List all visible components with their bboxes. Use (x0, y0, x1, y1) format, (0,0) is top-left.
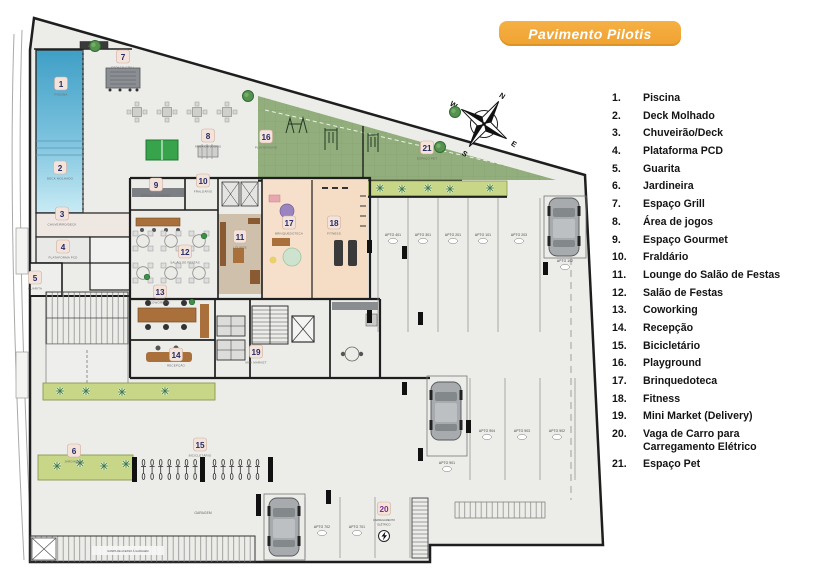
legend-item: 11.Lounge do Salão de Festas (612, 269, 814, 282)
legend-item-label: Fitness (643, 393, 814, 406)
legend-item-number: 12. (612, 287, 634, 300)
plan-badge-caption: JARDINEIRA (64, 460, 83, 464)
plant-icon (53, 462, 61, 470)
plan-badge-number: 11 (236, 233, 245, 242)
playground-green-area (258, 96, 556, 181)
legend-item-label: Lounge do Salão de Festas (643, 269, 814, 282)
ramp-label: RAMPA DE ACESSO À GARAGEM (107, 549, 148, 553)
tree-icon (90, 41, 101, 52)
parking-stall-text: APTO 201 (445, 233, 461, 237)
plan-badge-number: 20 (379, 505, 389, 514)
plan-badge-number: 13 (155, 288, 165, 297)
plan-badge-number: 16 (261, 133, 271, 142)
legend-item: 9.Espaço Gourmet (612, 234, 814, 247)
legend-item-number: 21. (612, 458, 634, 471)
legend-item: 15.Bicicletário (612, 340, 814, 353)
legend-item-number: 13. (612, 304, 634, 317)
legend-item-number: 4. (612, 145, 634, 158)
plan-title-ribbon: Pavimento Pilotis (499, 21, 681, 46)
legend-item: 12.Salão de Festas (612, 287, 814, 300)
legend-item-number: 15. (612, 340, 634, 353)
plan-badge-caption: CHUVEIRÃO/DECK (47, 222, 76, 227)
legend-item-label: Vaga de Carro para Carregamento Elétrico (643, 428, 814, 453)
legend-item: 5.Guarita (612, 163, 814, 176)
legend-item-number: 19. (612, 410, 634, 423)
legend-item: 8.Área de jogos (612, 216, 814, 229)
plant-icon (446, 185, 454, 193)
plant-icon (376, 184, 384, 192)
plan-badge-caption: ESPAÇO GRILL (111, 66, 135, 70)
legend-item-number: 18. (612, 393, 634, 406)
plan-badge-caption: ÁREA DE JOGOS (195, 145, 221, 149)
parking-stall-text: APTO 903 (514, 429, 530, 433)
main-stairs (46, 292, 128, 390)
legend-item: 1.Piscina (612, 92, 814, 105)
legend-item-number: 6. (612, 180, 634, 193)
parking-stall-oval (419, 238, 428, 243)
parking-stall-oval (553, 434, 562, 439)
legend-item: 20.Vaga de Carro para Carregamento Elétr… (612, 428, 814, 453)
parking-stall-oval (483, 434, 492, 439)
plant-icon (486, 184, 494, 192)
plant-icon (398, 185, 406, 193)
legend-item: 18.Fitness (612, 393, 814, 406)
legend-item: 2.Deck Molhado (612, 110, 814, 123)
plan-badge-number: 5 (33, 274, 38, 283)
legend-item-label: Brinquedoteca (643, 375, 814, 388)
parking-stall-oval (318, 530, 327, 535)
parking-stall-oval (449, 238, 458, 243)
garage-label: GARAGEM (194, 511, 212, 515)
garage-ramp: RAMPA DE ACESSO À GARAGEM (30, 536, 255, 562)
legend-item-label: Espaço Pet (643, 458, 814, 471)
legend-item-number: 10. (612, 251, 634, 264)
plant-icon (122, 460, 130, 468)
plant-icon (161, 387, 169, 395)
parking-stall-oval (479, 238, 488, 243)
plan-badge-number: 10 (198, 177, 208, 186)
legend-item-label: Coworking (643, 304, 814, 317)
plan-badge-number: 3 (60, 210, 65, 219)
plan-badge-number: 2 (58, 164, 63, 173)
parking-stall-oval (443, 466, 452, 471)
plan-badge-number: 12 (180, 248, 190, 257)
parking-stall-text: APTO 102 (557, 259, 573, 263)
plan-number-badge: 6JARDINEIRA (64, 444, 83, 464)
legend-item: 17.Brinquedoteca (612, 375, 814, 388)
legend-item-label: Recepção (643, 322, 814, 335)
legend-item-label: Piscina (643, 92, 814, 105)
legend-item: 4.Plataforma PCD (612, 145, 814, 158)
svg-text:CARREGAMENTO: CARREGAMENTO (373, 518, 395, 522)
legend-item-label: Espaço Grill (643, 198, 814, 211)
legend-item-label: Fraldário (643, 251, 814, 264)
parking-stall-oval (389, 238, 398, 243)
legend-item: 6.Jardineira (612, 180, 814, 193)
tree-icon (243, 91, 254, 102)
plan-badge-caption: BRINQUEDOTECA (275, 232, 303, 236)
legend-item-number: 8. (612, 216, 634, 229)
legend-item-number: 1. (612, 92, 634, 105)
plan-badge-caption: PLAYGROUND (255, 146, 278, 150)
legend-item-label: Área de jogos (643, 216, 814, 229)
plan-badge-caption: ESPAÇO PET (417, 157, 437, 161)
plan-number-badge: 20 (378, 502, 391, 515)
legend-item-label: Salão de Festas (643, 287, 814, 300)
plan-badge-caption: COWORKING (150, 301, 171, 305)
plan-badge-number: 18 (329, 219, 339, 228)
plan-number-badge: 11LOUNGE (233, 230, 247, 250)
plan-number-badge: 18FITNESS (327, 216, 341, 236)
legend-item: 13.Coworking (612, 304, 814, 317)
potted-plant-icon (201, 233, 207, 239)
legend-item: 14.Recepção (612, 322, 814, 335)
plan-badge-number: 14 (171, 351, 181, 360)
parking-stall-text: APTO 301 (415, 233, 431, 237)
plan-badge-caption: MINI MARKET (245, 361, 266, 365)
legend-item-label: Jardineira (643, 180, 814, 193)
compass-n: N (498, 91, 507, 102)
legend-item: 21.Espaço Pet (612, 458, 814, 471)
plant-icon (424, 184, 432, 192)
parking-stall-text: APTO 902 (549, 429, 565, 433)
legend-item: 19.Mini Market (Delivery) (612, 410, 814, 423)
plan-number-badge: 14RECEPÇÃO (167, 348, 186, 368)
parking-stall-oval (561, 264, 570, 269)
plan-badge-number: 19 (251, 348, 261, 357)
legend-item-label: Playground (643, 357, 814, 370)
plan-number-badge: 1PISCINA (54, 77, 67, 97)
plan-badge-caption: PISCINA (54, 93, 67, 97)
parking-stall-text: APTO 904 (479, 429, 495, 433)
legend-item: 7.Espaço Grill (612, 198, 814, 211)
legend-item: 10.Fraldário (612, 251, 814, 264)
plan-badge-number: 7 (121, 53, 126, 62)
plant-icon (100, 462, 108, 470)
legend-item-label: Plataforma PCD (643, 145, 814, 158)
legend-item-number: 2. (612, 110, 634, 123)
plant-icon (56, 387, 64, 395)
legend-item-number: 5. (612, 163, 634, 176)
plan-badge-number: 9 (154, 181, 159, 190)
legend: 1.Piscina2.Deck Molhado3.Chuveirão/Deck4… (612, 92, 814, 476)
plan-badge-number: 4 (61, 243, 66, 252)
plan-badge-caption: RECEPÇÃO (167, 363, 186, 368)
parking-stall-text: APTO 101 (475, 233, 491, 237)
plan-badge-caption: BICICLETÁRIO (189, 454, 212, 458)
legend-item-label: Mini Market (Delivery) (643, 410, 814, 423)
pool (36, 50, 83, 213)
plan-badge-number: 6 (72, 447, 77, 456)
legend-item-number: 16. (612, 357, 634, 370)
plan-number-badge: 5GUARITA (28, 271, 42, 291)
parking-stall-oval (515, 238, 524, 243)
plan-badge-caption: LOUNGE (233, 246, 247, 250)
plan-badge-caption: GUARITA (28, 287, 42, 291)
plan-badge-number: 21 (422, 144, 432, 153)
potted-plant-icon (144, 274, 150, 280)
parking-stall-oval (518, 434, 527, 439)
plan-badge-caption: PLATAFORMA PCD (49, 256, 79, 260)
plant-icon (118, 388, 126, 396)
legend-item-label: Bicicletário (643, 340, 814, 353)
parking-stall-text: APTO 702 (314, 525, 330, 529)
legend-item-label: Guarita (643, 163, 814, 176)
parking-stall-text: APTO 901 (439, 461, 455, 465)
legend-item-number: 14. (612, 322, 634, 335)
plan-badge-number: 15 (195, 441, 205, 450)
potted-plant-icon (189, 299, 195, 305)
parking-stall-text: APTO 203 (511, 233, 527, 237)
legend-item: 16.Playground (612, 357, 814, 370)
legend-item-number: 3. (612, 127, 634, 140)
tree-icon (435, 142, 446, 153)
legend-item: 3.Chuveirão/Deck (612, 127, 814, 140)
legend-item-label: Deck Molhado (643, 110, 814, 123)
tree-icon (450, 107, 461, 118)
parking-stall-oval (353, 530, 362, 535)
plan-badge-caption: FRALDÁRIO (194, 190, 213, 194)
legend-item-number: 9. (612, 234, 634, 247)
legend-item-number: 7. (612, 198, 634, 211)
plan-badge-caption: DECK MOLHADO (47, 177, 74, 181)
plan-badge-caption: FITNESS (327, 232, 341, 236)
parking-stall-text: APTO 401 (385, 233, 401, 237)
plan-badge-caption: ESPAÇO GOURMET (141, 194, 172, 198)
plan-badge-number: 1 (59, 80, 64, 89)
legend-item-number: 20. (612, 428, 634, 453)
legend-item-number: 17. (612, 375, 634, 388)
plan-badge-caption: SALÃO DE FESTAS (170, 260, 200, 265)
plan-badge-number: 17 (284, 219, 294, 228)
floor-plan: ACESSO (0, 0, 610, 570)
legend-item-label: Espaço Gourmet (643, 234, 814, 247)
plan-badge-number: 8 (206, 132, 211, 141)
compass-e: E (509, 139, 518, 149)
page: ACESSO (0, 0, 818, 570)
legend-item-label: Chuveirão/Deck (643, 127, 814, 140)
plant-icon (82, 387, 90, 395)
legend-item-number: 11. (612, 269, 634, 282)
parking-stall-text: APTO 701 (349, 525, 365, 529)
